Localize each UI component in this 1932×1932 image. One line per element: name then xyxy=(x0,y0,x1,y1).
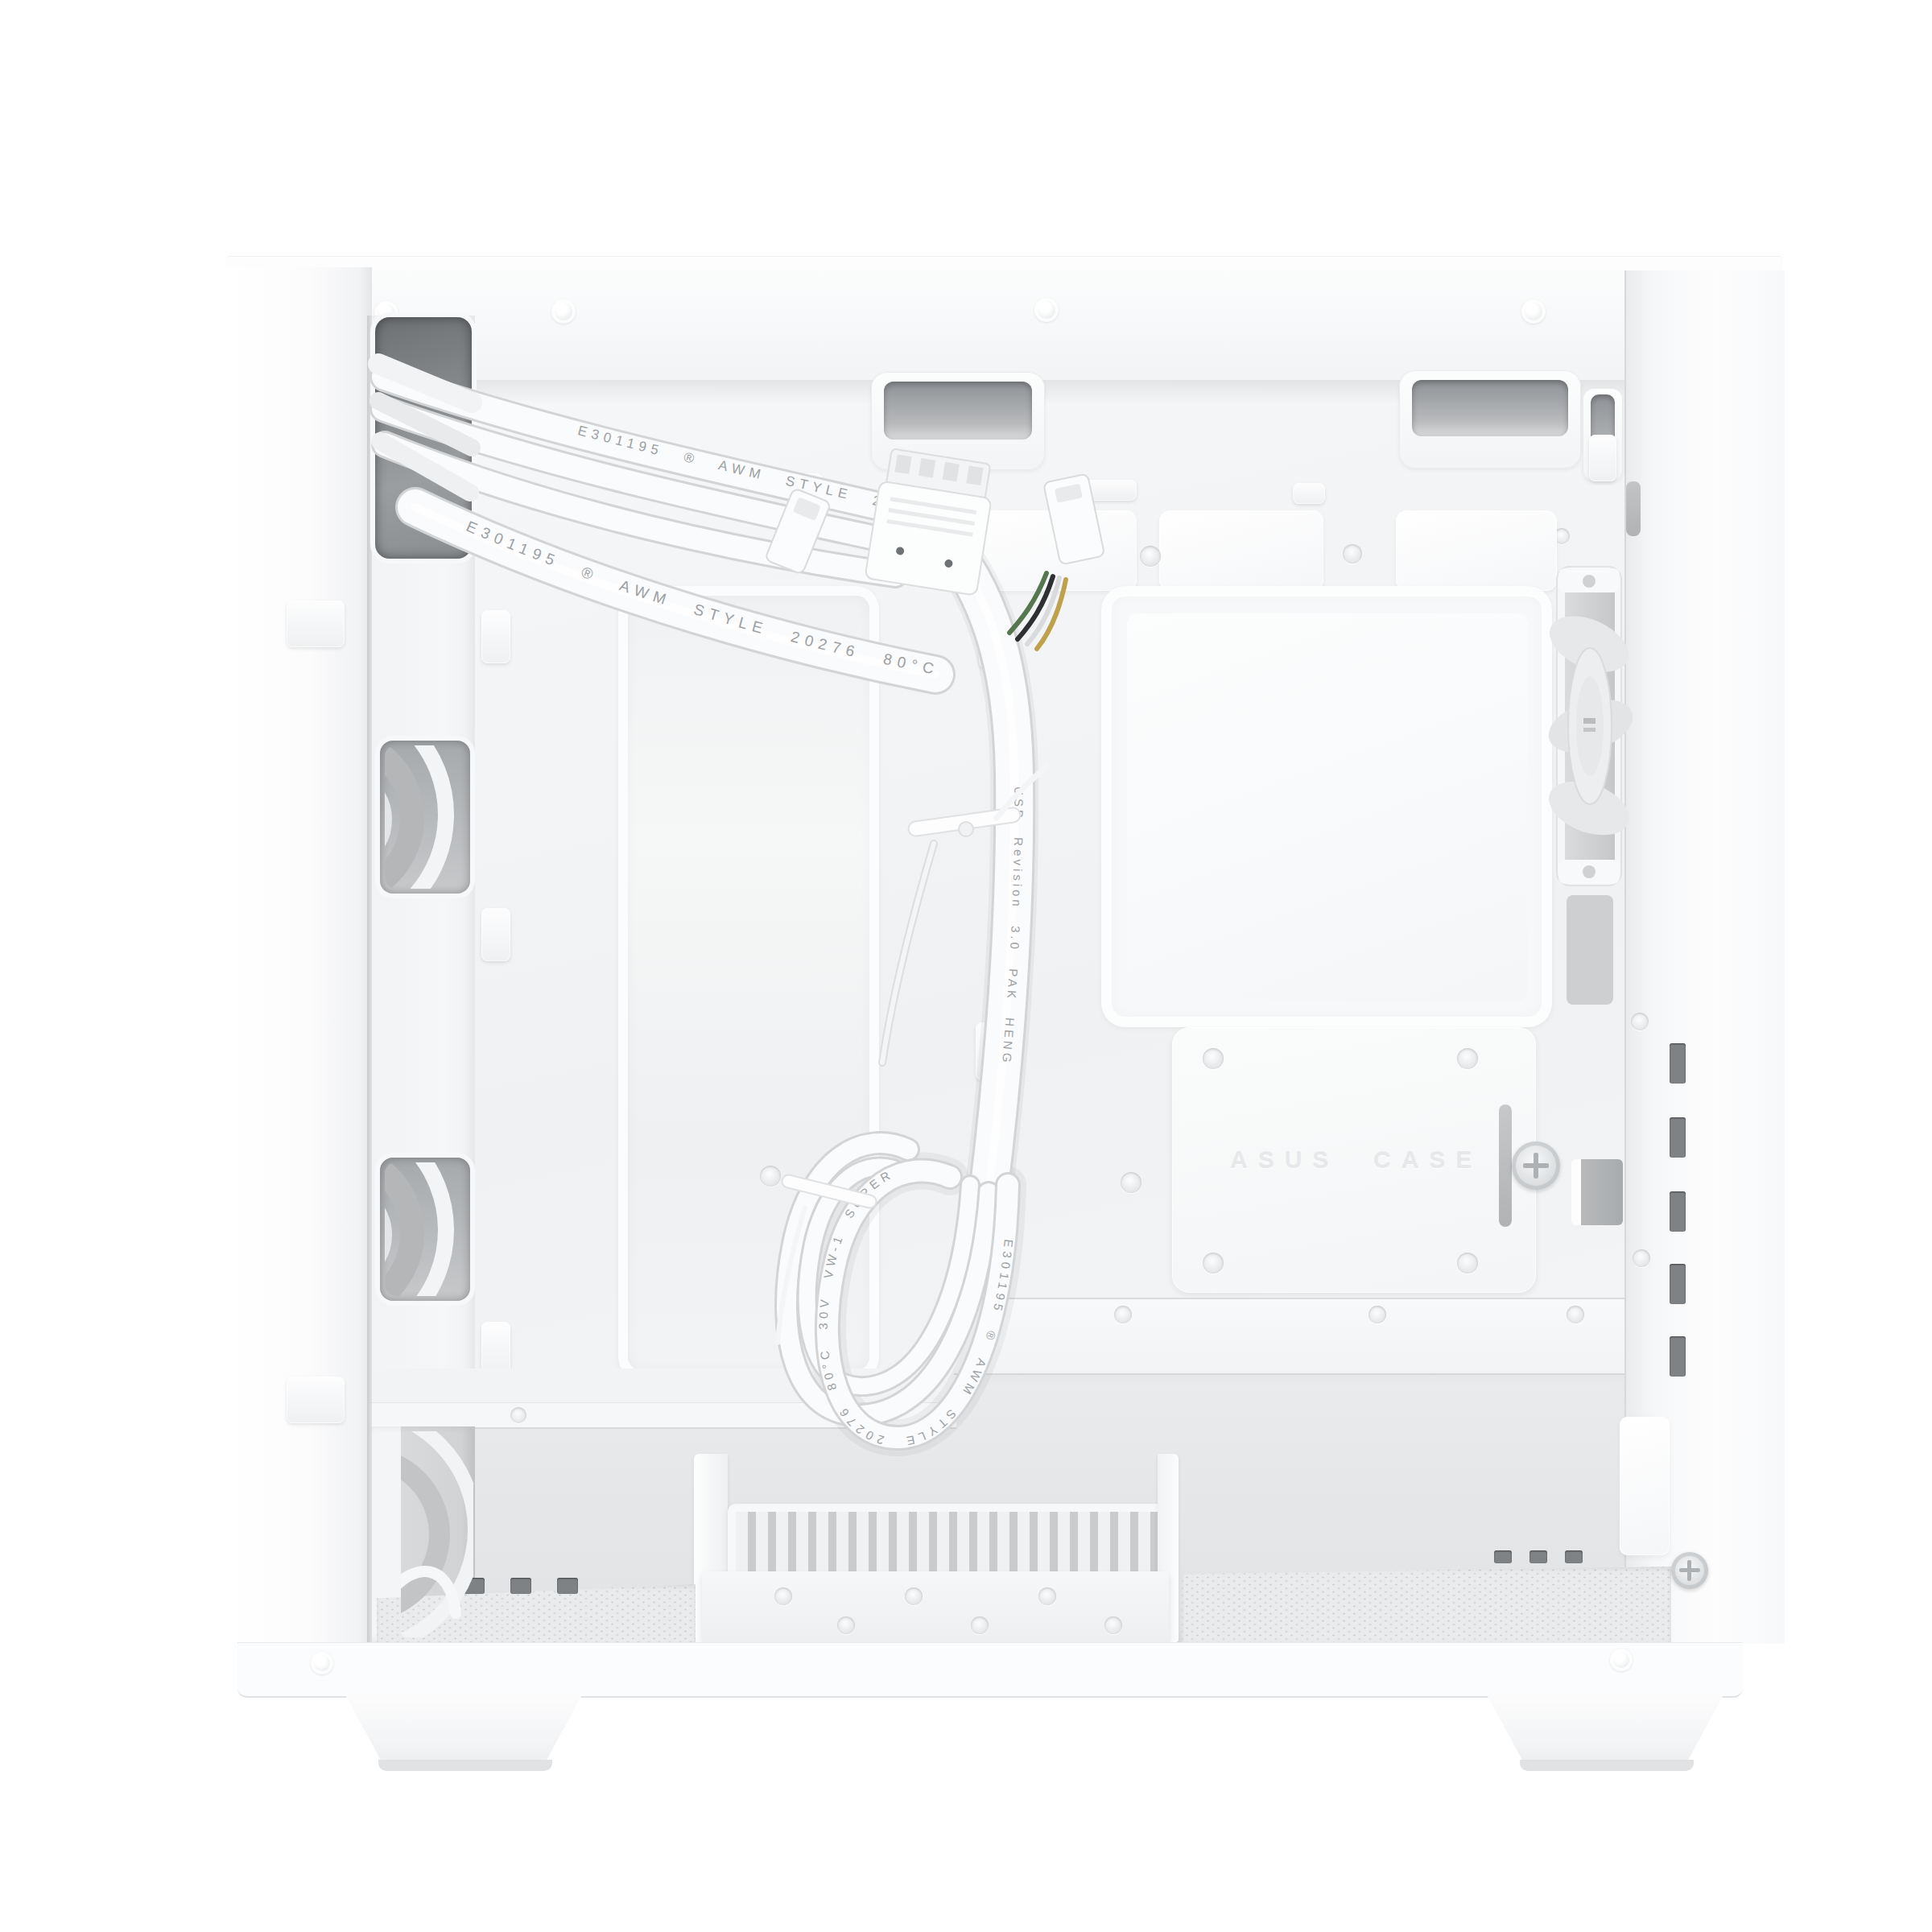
expansion-hook-slot-1 xyxy=(1670,1043,1686,1084)
cage-grommet-4 xyxy=(837,1616,855,1634)
ssd-plate-hole-br xyxy=(1457,1253,1478,1274)
tray-screw-2 xyxy=(1121,1172,1141,1193)
expansion-hook-slot-5 xyxy=(1670,1336,1686,1377)
brand-plate-text: ASUS CASE xyxy=(1230,1146,1480,1174)
ssd-thumbscrew xyxy=(1512,1141,1560,1190)
wall-slot-right-2 xyxy=(1529,1550,1547,1563)
wall-slot-left-1 xyxy=(464,1578,485,1594)
rivet-top-3 xyxy=(1034,298,1059,322)
wall-slot-right-3 xyxy=(1565,1550,1583,1563)
tray-raised-panel-2 xyxy=(1159,510,1323,591)
expansion-hook-slot-3 xyxy=(1670,1191,1686,1232)
case-foot-left-base xyxy=(378,1760,552,1771)
front-panel-edge xyxy=(225,267,372,1644)
divider-rivet-left xyxy=(510,1407,526,1423)
ssd-plate-slot xyxy=(1499,1104,1512,1227)
ssd-plate-hole-tr xyxy=(1457,1048,1478,1069)
rivet-top-2 xyxy=(551,299,576,324)
expansion-hook-slot-4 xyxy=(1670,1264,1686,1304)
tray-raised-panel-3 xyxy=(1396,510,1557,591)
product-photo-scene: ASUS CASE xyxy=(0,0,1932,1932)
step-rivet-2 xyxy=(1368,1306,1386,1323)
left-divider-band xyxy=(372,1402,956,1429)
cable-grommet-opening xyxy=(375,317,472,559)
standoff-hole-2 xyxy=(807,549,828,570)
front-fan-opening-lower xyxy=(380,1158,470,1301)
cage-grommet-3 xyxy=(1038,1587,1056,1605)
front-radiator-cutout xyxy=(618,586,879,1380)
case-foot-right-base xyxy=(1520,1760,1694,1771)
wall-slot-right-1 xyxy=(1494,1550,1512,1563)
tray-raised-panel-1 xyxy=(972,510,1137,591)
psu-thumbscrew xyxy=(1671,1552,1708,1589)
front-fan-opening-upper xyxy=(380,741,470,894)
cage-grommet-1 xyxy=(774,1587,792,1605)
cage-grommet-5 xyxy=(971,1616,989,1634)
front-panel-tab-upper xyxy=(287,601,345,647)
case-foot-right xyxy=(1480,1695,1731,1769)
cable-clip-1 xyxy=(481,610,510,663)
tray-vertical-clip-2 xyxy=(976,1022,1000,1080)
rivet-bottom-left xyxy=(311,1652,333,1674)
cable-clip-3 xyxy=(481,1322,510,1375)
drive-cage-front xyxy=(702,1571,1169,1642)
ssd-plate-hole-tl xyxy=(1203,1048,1224,1069)
psu-shroud-step xyxy=(954,1298,1624,1375)
rivet-top-4 xyxy=(1521,299,1546,324)
wall-slot-left-3 xyxy=(557,1578,578,1594)
tie-point-2 xyxy=(1080,480,1137,501)
side-panel-seen-through-cutout xyxy=(1127,613,1528,1001)
step-rivet-1 xyxy=(1114,1306,1132,1323)
tie-point-1 xyxy=(774,473,823,494)
side-slim-slot xyxy=(1626,481,1641,536)
standoff-hole-1 xyxy=(1140,546,1161,567)
expansion-hook-slot-2 xyxy=(1670,1117,1686,1158)
psu-mount-bracket xyxy=(1620,1417,1670,1555)
bottom-frame-band xyxy=(237,1642,1743,1698)
step-rivet-3 xyxy=(1567,1306,1584,1323)
cage-grommet-6 xyxy=(1104,1616,1122,1634)
dust-mesh-right xyxy=(1182,1567,1671,1642)
cable-clip-2 xyxy=(481,908,510,961)
wall-rivet-2 xyxy=(1633,1249,1650,1267)
standoff-hole-3 xyxy=(1343,544,1362,563)
rivet-bottom-right xyxy=(1610,1649,1633,1671)
wall-slot-left-2 xyxy=(510,1578,531,1594)
rear-vent-block-upper xyxy=(1571,1159,1623,1225)
wall-rivet-1 xyxy=(1631,1013,1649,1030)
tray-screw-1 xyxy=(760,1166,781,1187)
tray-lower-extension xyxy=(372,1368,956,1404)
ssd-plate-hole-bl xyxy=(1203,1253,1224,1274)
front-panel-tab-lower xyxy=(287,1377,345,1423)
top-cable-cutout-left xyxy=(884,382,1032,440)
tie-point-3 xyxy=(1293,483,1325,504)
top-cable-cutout-right xyxy=(1412,380,1568,436)
top-hook-roller-tab xyxy=(1589,435,1616,481)
cage-grommet-2 xyxy=(905,1587,923,1605)
tray-vertical-clip-1 xyxy=(979,609,1003,668)
case-foot-left xyxy=(338,1695,589,1769)
